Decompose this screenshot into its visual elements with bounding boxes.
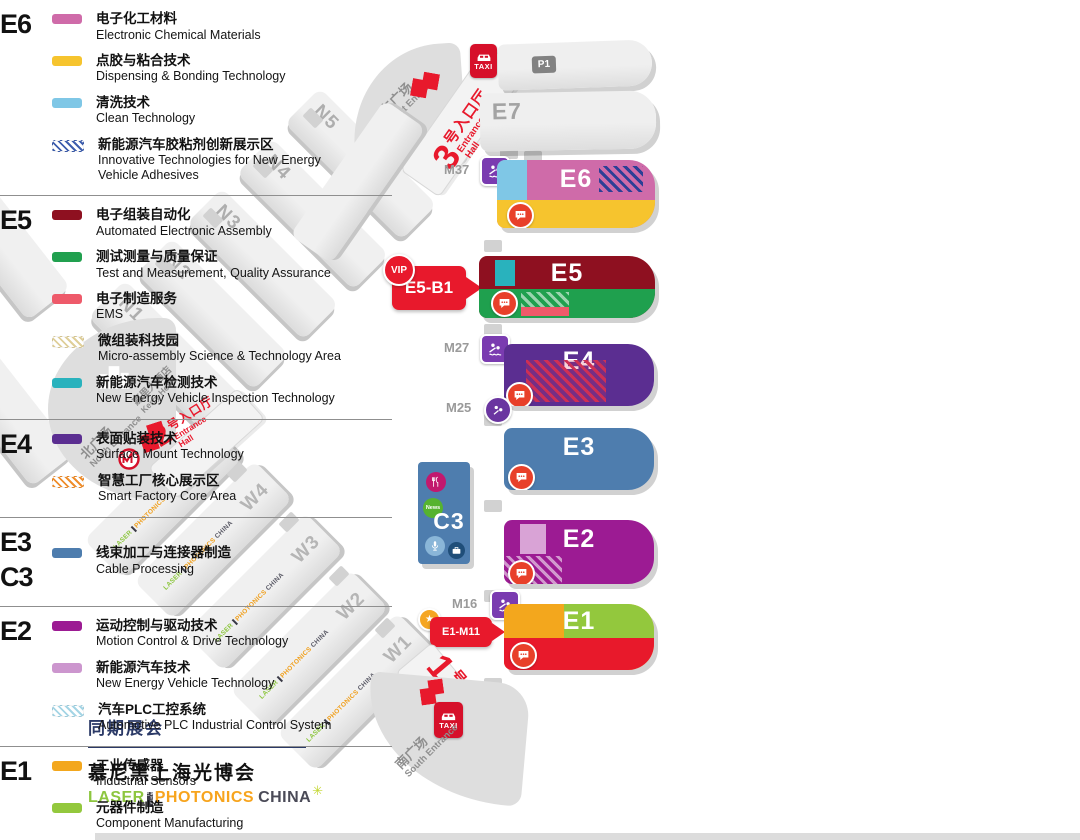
legend-item: 微组装科技园 Micro-assembly Science & Technolo… <box>52 332 352 364</box>
legend-label-en: Automotive PLC Industrial Control System <box>98 718 331 732</box>
legend-label-en: Test and Measurement, Quality Assurance <box>96 266 331 280</box>
page-bottom-strip <box>95 833 1080 840</box>
legend-label-zh: 电子制造服务 <box>96 290 177 308</box>
floorplan-page: N5 N4 N3 N2 N1 LASERPHOTONICSCHINA W5 LA… <box>0 0 1080 840</box>
legend-item: 测试测量与质量保证 Test and Measurement, Quality … <box>52 248 352 280</box>
legend-label-en: Automated Electronic Assembly <box>96 224 272 238</box>
legend: E6 电子化工材料 Electronic Chemical Materials … <box>0 0 392 840</box>
legend-swatch <box>52 761 82 771</box>
legend-swatch <box>52 294 82 304</box>
parking-p1: P1 <box>497 39 653 90</box>
legend-swatch <box>52 210 82 220</box>
microphone-icon <box>425 536 445 556</box>
e4-smart-factory-zone <box>526 360 606 402</box>
bridge-m27-label: M27 <box>444 340 469 355</box>
hall-e5-label: E5 <box>479 259 655 288</box>
legend-label-zh: 元器件制造 <box>96 799 243 817</box>
legend-label-zh: 新能源汽车技术 <box>96 659 274 677</box>
legend-item: 智慧工厂核心展示区 Smart Factory Core Area <box>52 472 352 504</box>
legend-label-zh: 测试测量与质量保证 <box>96 248 331 266</box>
legend-swatch-hatched <box>52 336 84 348</box>
hall-e7: E7 <box>480 90 657 151</box>
bridge-icon-m25 <box>484 396 512 424</box>
legend-label-zh: 运动控制与驱动技术 <box>96 617 288 635</box>
legend-hall-id: E1 <box>0 757 52 840</box>
chat-icon <box>507 202 534 228</box>
legend-swatch <box>52 663 82 673</box>
chat-icon <box>508 560 535 584</box>
legend-section-e3-c3: E3 C3 线束加工与连接器制造 Cable Processing <box>0 517 392 606</box>
legend-swatch-hatched <box>52 140 84 152</box>
legend-hall-id: E6 <box>0 10 52 182</box>
legend-label-en: Clean Technology <box>96 111 195 125</box>
bridge-m37-label: M37 <box>444 162 469 177</box>
legend-item: 新能源汽车检测技术 New Energy Vehicle Inspection … <box>52 374 352 406</box>
legend-label-en: Surface Mount Technology <box>96 447 244 461</box>
legend-label-zh: 智慧工厂核心展示区 <box>98 472 236 490</box>
chat-icon <box>508 464 535 490</box>
hall-e3-label: E3 <box>504 433 654 462</box>
legend-label-zh: 微组装科技园 <box>98 332 341 350</box>
hall-e5: E5 <box>479 256 655 318</box>
legend-swatch <box>52 14 82 24</box>
legend-label-zh: 电子组装自动化 <box>96 206 272 224</box>
bridge-m25-label: M25 <box>446 400 471 415</box>
legend-item: 线束加工与连接器制造 Cable Processing <box>52 544 352 576</box>
hall-e1-label: E1 <box>504 607 654 636</box>
legend-hall-id: E2 <box>0 617 52 733</box>
legend-label-zh: 汽车PLC工控系统 <box>98 701 331 719</box>
legend-label-zh: 线束加工与连接器制造 <box>96 544 231 562</box>
legend-label-zh: 新能源汽车检测技术 <box>96 374 335 392</box>
taxi-icon: TAXI <box>470 44 497 78</box>
hall-e6: E6 <box>497 160 655 228</box>
legend-item: 运动控制与驱动技术 Motion Control & Drive Technol… <box>52 617 352 649</box>
legend-swatch <box>52 803 82 813</box>
hall-e2: E2 <box>504 520 654 584</box>
e5-ems-zone <box>521 307 569 316</box>
legend-label-en: Cable Processing <box>96 562 231 576</box>
legend-section-e4: E4 表面贴装技术 Surface Mount Technology 智慧工厂核… <box>0 419 392 517</box>
legend-item: 清洗技术 Clean Technology <box>52 94 352 126</box>
business-lounge-icon <box>448 542 465 559</box>
legend-section-e1: E1 工业传感器 Industrial Sensors 元器件制造 Compon… <box>0 746 392 840</box>
bridge-m16-label: M16 <box>452 596 477 611</box>
legend-item: 元器件制造 Component Manufacturing <box>52 799 352 831</box>
legend-swatch <box>52 378 82 388</box>
legend-label-en: Smart Factory Core Area <box>98 489 236 503</box>
legend-swatch-hatched <box>52 705 84 717</box>
legend-label-en: New Energy Vehicle Technology <box>96 676 274 690</box>
legend-label-zh: 电子化工材料 <box>96 10 261 28</box>
car-glyph <box>476 52 492 62</box>
legend-hall-id: E5 <box>0 206 52 406</box>
legend-label-zh: 清洗技术 <box>96 94 195 112</box>
legend-swatch <box>52 98 82 108</box>
legend-label-en: EMS <box>96 307 177 321</box>
hall-e4: E4 <box>504 344 654 406</box>
legend-section-e5: E5 电子组装自动化 Automated Electronic Assembly… <box>0 195 392 419</box>
legend-swatch <box>52 548 82 558</box>
legend-label-en: Micro-assembly Science & Technology Area <box>98 349 341 363</box>
e1-m11-badge: E1-M11 <box>430 617 492 647</box>
legend-swatch <box>52 621 82 631</box>
legend-label-en: Electronic Chemical Materials <box>96 28 261 42</box>
hall-e3: E3 <box>504 428 654 490</box>
legend-section-e2: E2 运动控制与驱动技术 Motion Control & Drive Tech… <box>0 606 392 746</box>
legend-item: 电子组装自动化 Automated Electronic Assembly <box>52 206 352 238</box>
legend-label-zh: 新能源汽车胶粘剂创新展示区 <box>98 136 352 154</box>
legend-label-zh: 表面贴装技术 <box>96 430 244 448</box>
legend-swatch <box>52 252 82 262</box>
legend-item: 新能源汽车胶粘剂创新展示区 Innovative Technologies fo… <box>52 136 352 182</box>
chat-icon <box>510 642 537 669</box>
connector-block <box>484 240 502 252</box>
legend-label-zh: 点胶与粘合技术 <box>96 52 285 70</box>
legend-hall-id: C3 <box>0 563 52 593</box>
legend-label-en: New Energy Vehicle Inspection Technology <box>96 391 335 405</box>
hall-e7-label: E7 <box>492 98 523 126</box>
hall-c3-label: C3 <box>428 508 470 535</box>
legend-label-en: Dispensing & Bonding Technology <box>96 69 285 83</box>
hall-e2-label: E2 <box>504 525 654 554</box>
legend-item: 汽车PLC工控系统 Automotive PLC Industrial Cont… <box>52 701 352 733</box>
legend-item: 电子化工材料 Electronic Chemical Materials <box>52 10 352 42</box>
legend-label-en: Industrial Sensors <box>96 774 196 788</box>
legend-label-en: Motion Control & Drive Technology <box>96 634 288 648</box>
legend-label-zh: 工业传感器 <box>96 757 196 775</box>
legend-label-en: Innovative Technologies for New Energy V… <box>98 153 352 182</box>
connector-block <box>484 500 502 512</box>
legend-label-en: Component Manufacturing <box>96 816 243 830</box>
legend-swatch-hatched <box>52 476 84 488</box>
restaurant-icon <box>426 472 446 492</box>
legend-item: 电子制造服务 EMS <box>52 290 352 322</box>
legend-section-e6: E6 电子化工材料 Electronic Chemical Materials … <box>0 0 392 195</box>
p1-badge: P1 <box>532 56 557 74</box>
legend-item: 新能源汽车技术 New Energy Vehicle Technology <box>52 659 352 691</box>
legend-item: 点胶与粘合技术 Dispensing & Bonding Technology <box>52 52 352 84</box>
chat-icon <box>491 290 518 317</box>
legend-hall-id: E3 <box>0 528 52 558</box>
legend-swatch <box>52 434 82 444</box>
legend-hall-id: E4 <box>0 430 52 504</box>
hall-c3: News C3 <box>418 462 470 564</box>
legend-item: 工业传感器 Industrial Sensors <box>52 757 352 789</box>
hall-e1: E1 <box>504 604 654 670</box>
e5-micro-assembly-zone <box>521 292 569 307</box>
legend-swatch <box>52 56 82 66</box>
legend-item: 表面贴装技术 Surface Mount Technology <box>52 430 352 462</box>
hall-e6-label: E6 <box>497 165 655 194</box>
